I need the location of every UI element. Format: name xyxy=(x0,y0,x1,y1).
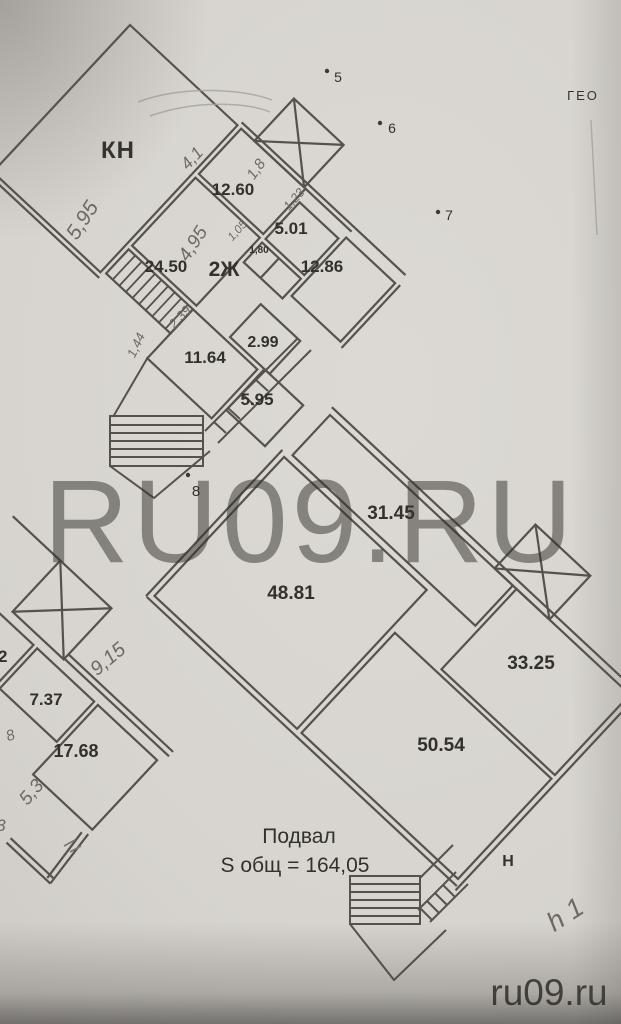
survey-label-7: 7 xyxy=(445,207,453,223)
apartment-label-2zh: 2Ж xyxy=(209,258,241,281)
dim-53: 5,3 xyxy=(15,775,48,809)
basement-area-total: S общ = 164,05 xyxy=(221,854,370,877)
floor-plan-drawing: RU09.RU КН 12.60 5.01 24.50 2Ж 1,80 12.8… xyxy=(0,0,621,1024)
room-area-1286: 12.86 xyxy=(301,257,344,276)
room-area-3145: 31.45 xyxy=(367,503,415,524)
room-area-1260: 12.60 xyxy=(212,180,255,199)
room-3325-walls xyxy=(441,589,621,775)
dim-595: 5,95 xyxy=(62,197,104,244)
dim-8-handwritten: 8 xyxy=(4,726,18,745)
room-label-kn: КН xyxy=(101,137,135,164)
cell-dim-180: 1,80 xyxy=(249,245,269,256)
survey-dot-6 xyxy=(378,121,382,125)
room-1286-walls xyxy=(292,237,396,341)
room-area-1164: 11.64 xyxy=(184,348,226,367)
survey-dot-5 xyxy=(325,69,329,73)
survey-label-5: 5 xyxy=(334,69,342,85)
corner-text-geo: ГЕО xyxy=(567,88,599,103)
room-area-1768: 17.68 xyxy=(53,741,98,761)
room-area-737: 7.37 xyxy=(29,690,62,709)
survey-label-8: 8 xyxy=(192,483,200,500)
room-area-62-partial: 62 xyxy=(0,647,7,666)
dim-3-partial: 3 xyxy=(0,816,6,835)
room-area-5054: 50.54 xyxy=(417,735,465,756)
dim-915: 9,15 xyxy=(86,638,131,680)
note-h1-pen: h 1 xyxy=(541,892,589,938)
basement-title: Подвал xyxy=(262,825,335,848)
room-area-3325: 33.25 xyxy=(507,653,555,674)
dim-18: 1,8 xyxy=(243,155,269,182)
room-area-4881: 48.81 xyxy=(267,583,315,604)
floor-plan-photo: RU09.RU КН 12.60 5.01 24.50 2Ж 1,80 12.8… xyxy=(0,0,621,1024)
survey-label-6: 6 xyxy=(388,120,396,136)
watermark-center: RU09.RU xyxy=(44,456,577,588)
room-area-595: 5.95 xyxy=(240,390,273,409)
dim-105: 1,05 xyxy=(226,218,250,243)
survey-dot-7 xyxy=(436,210,440,214)
room-1768-walls xyxy=(33,705,157,830)
faint-edge-line xyxy=(591,120,597,235)
room-area-299: 2.99 xyxy=(247,334,278,351)
room-area-501: 5.01 xyxy=(274,219,307,238)
entry-label-n: Н xyxy=(502,853,514,870)
basement-building-walls xyxy=(143,364,621,891)
survey-dot-8 xyxy=(186,473,190,477)
watermark-corner: ru09.ru xyxy=(490,972,607,1013)
room-area-2450: 24.50 xyxy=(145,257,188,276)
dim-144: 1,44 xyxy=(124,330,148,359)
